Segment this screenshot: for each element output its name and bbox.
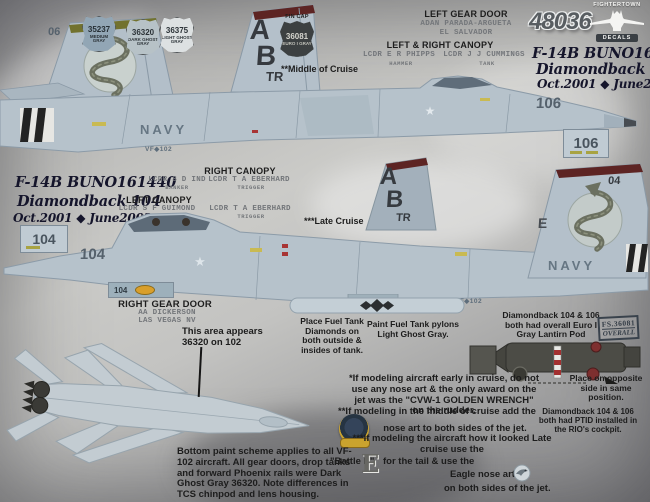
middle-cruise-note-a: **If modeling in the middle of cruise ad… [338,407,536,418]
bottom-scheme-note: Bottom paint scheme applies to all VF-10… [177,447,355,501]
paint-chip-36081: 36081 EURO I GRAY [280,21,314,57]
late-cruise-note-c: for the tail & use the [383,457,474,468]
canopy-106-front-callsign: HAMMER [389,60,412,67]
place-opposite-note: Place on opposite side in same position. [568,374,644,403]
fuel-tank-illustration [288,294,466,318]
paint-chip-36375: 36375 LIGHT GHOST GRAY [160,17,194,53]
f14-silhouette-icon [589,8,645,34]
paint-chip-name: EURO I GRAY [282,42,311,47]
paint-chip-name: DARK GHOST GRAY [127,38,159,47]
paint-chip-fs: 36320 [132,28,154,37]
stamp-fs-number: FS.36081 [602,318,636,329]
paint-chip-name: LIGHT GHOST GRAY [161,36,193,45]
fightertown-logo-text: FIGHTERTOWN [588,2,646,8]
battle-e-tail-marking: E [538,216,548,230]
jet104-navy-marking: NAVY [548,258,595,273]
tail-modex-06: 06 [48,26,61,38]
gear-door-modex: 104 [114,286,127,295]
jet106-nose-modex: 106 [536,95,562,112]
paint-chip-name: MEDIUM GRAY [83,35,115,44]
tail-letter-b: B [385,188,404,212]
jet-104-profile-illustration: ★ [0,152,650,304]
fuel-diamonds-note: Place Fuel Tank Diamonds on both outside… [299,317,365,356]
canopy-106-front-name: LCDR E R PHIPPS [363,51,435,59]
area-36320-note: This area appears 36320 on 102 [182,327,263,349]
fuel-pylons-note: Paint Fuel Tank pylons Light Ghost Gray. [367,320,459,339]
modex-106-detail: 106 [573,135,598,152]
paint-chip-35237: 35237 MEDIUM GRAY [82,16,116,52]
right-gear-door-name: AA DICKERSON [138,309,196,317]
catalog-number: 48036 [529,8,591,36]
modex-104-detail-box: 104 [20,225,68,253]
left-gear-door-hometown: EL SALVADOR [440,29,493,37]
jet106-navy-marking: NAVY [140,122,187,137]
modex-104-detail: 104 [32,231,55,247]
jet106-title: F-14B BUNO162910 [532,45,650,62]
star-insignia-icon: ★ [425,104,436,118]
tail-modex-04: 04 [608,176,621,187]
tail-code-tr: TR [396,213,411,224]
paint-chip-36320: 36320 DARK GHOST GRAY [126,19,160,55]
late-cruise-note-d: Eagle nose art [450,470,515,481]
slime-light-bar [26,246,40,249]
right-gear-door-hometown: LAS VEGAS NV [138,317,196,325]
eagle-nose-art-icon [513,464,531,482]
decal-sheet: 06 35237 MEDIUM GRAY 36320 DARK GHOST GR… [0,0,650,502]
left-gear-door-name: ADAN PARADA-ARGUETA [420,20,511,28]
tail-letter-b: B [255,42,277,70]
gear-door-orange-marking [135,285,155,295]
fin-cap-label: FIN CAP [285,14,308,20]
canopy-106-heading: LEFT & RIGHT CANOPY [387,40,494,50]
fightertown-decals-band: DECALS [596,34,638,42]
star-insignia-icon: ★ [194,254,206,269]
ptid-note: Diamondback 104 & 106 both had PTID inst… [534,407,642,434]
paint-chip-fs: 35237 [88,25,110,34]
paint-chip-fs: 36375 [166,26,188,35]
gear-door-104-illustration: 104 [108,282,174,298]
jet104-nose-modex: 104 [80,246,106,263]
left-gear-door-heading: LEFT GEAR DOOR [424,9,507,19]
fightertown-logo: FIGHTERTOWN DECALS [588,2,646,42]
canopy-106-rear-name: LCDR J J CUMMINGS [443,51,525,59]
battle-e-glyph: E [361,449,379,478]
paint-chip-fs: 36081 [286,32,308,41]
canopy-106-rear-callsign: TANK [479,60,495,67]
late-cruise-note-e: on both sides of the jet. [444,484,551,495]
